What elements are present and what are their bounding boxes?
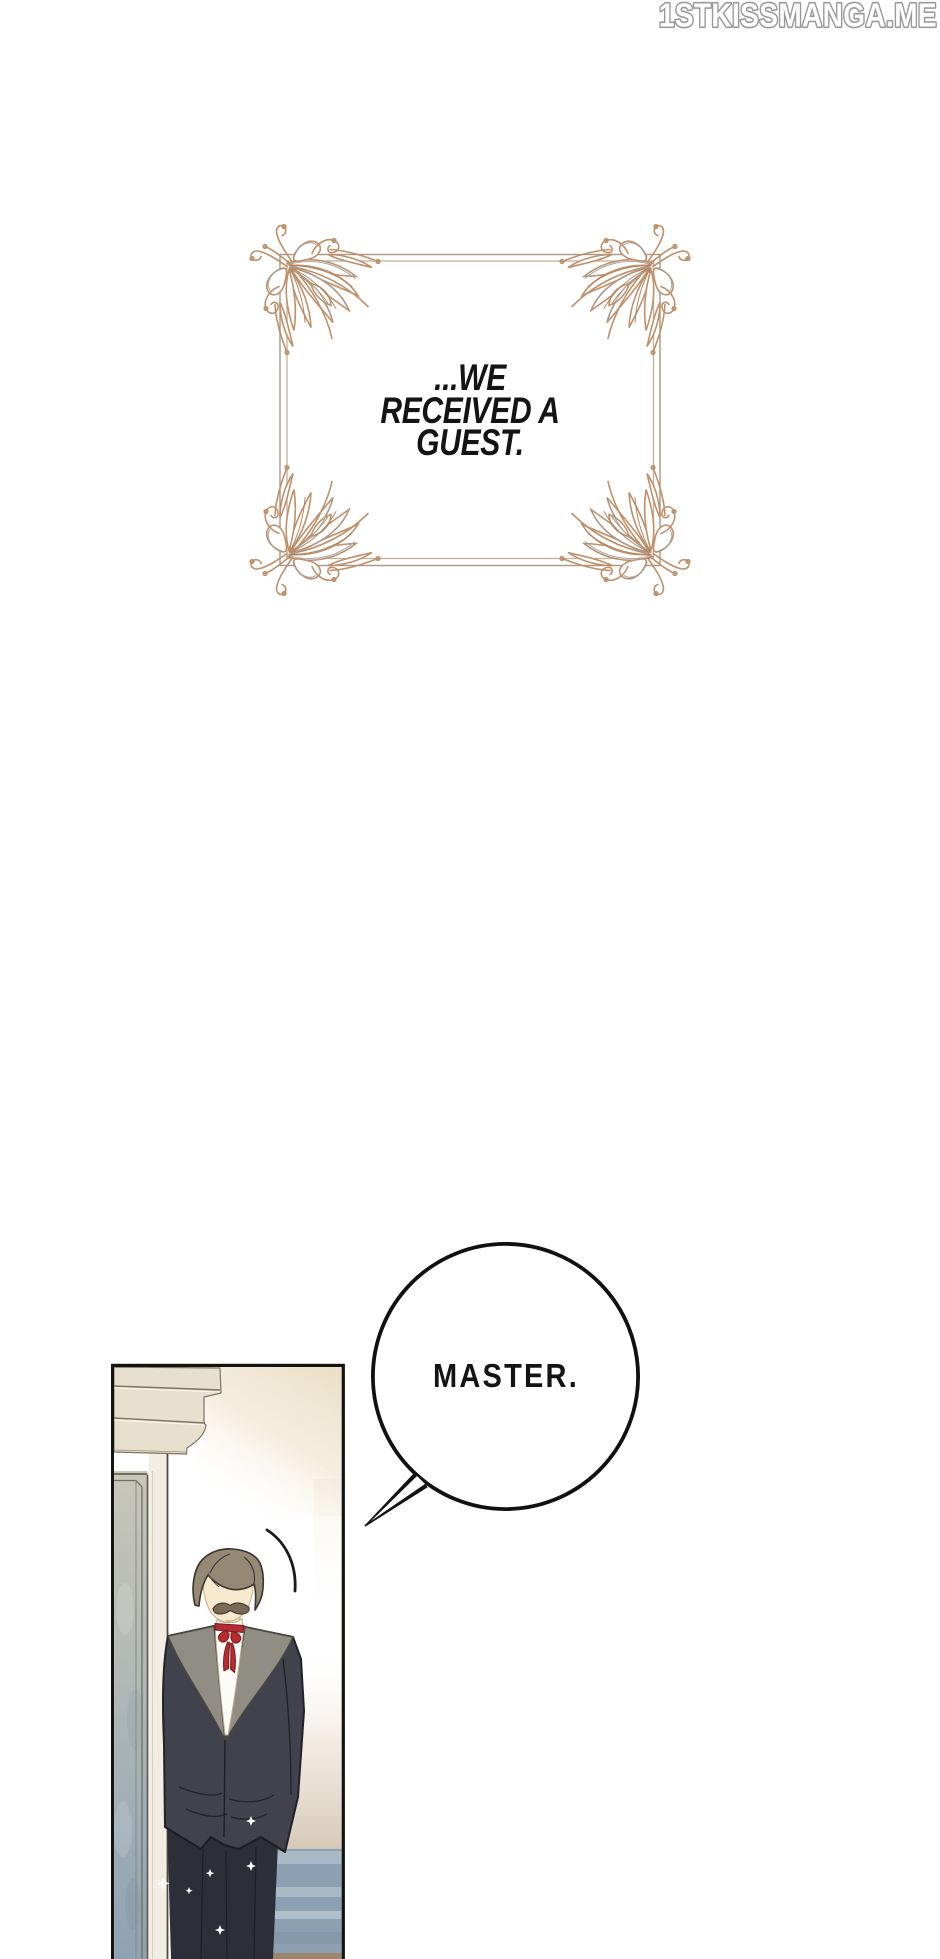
svg-text:1STKISSMANGA.ME: 1STKISSMANGA.ME: [659, 0, 937, 34]
